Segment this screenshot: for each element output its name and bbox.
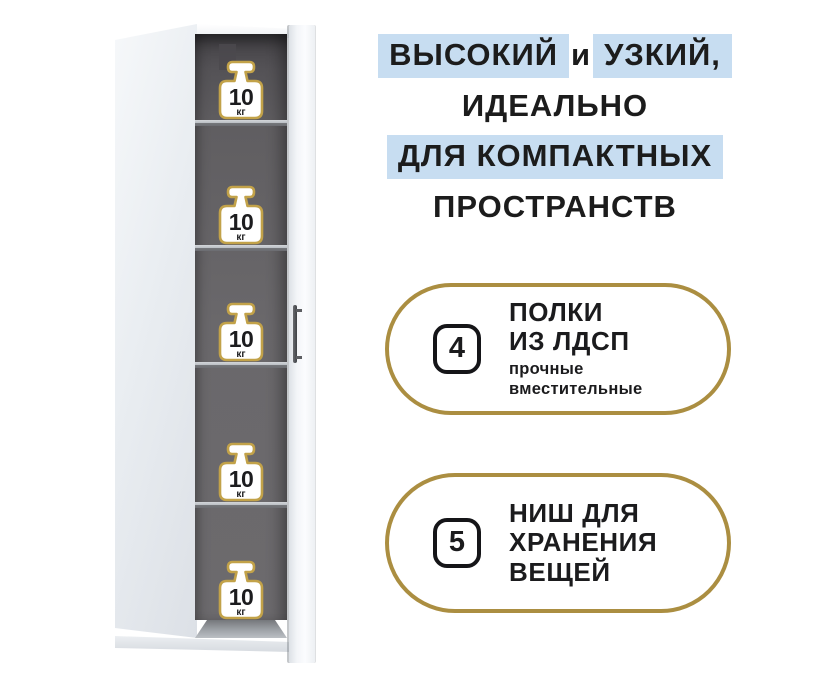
feature-title-line: ПОЛКИ: [509, 298, 603, 327]
feature-subtitle-line: прочные: [509, 360, 584, 380]
weight-capacity-icon: 10 кг: [217, 185, 265, 245]
feature-badge-niches: 5 НИШ ДЛЯ ХРАНЕНИЯ ВЕЩЕЙ: [385, 473, 731, 613]
weight-capacity-icon: 10 кг: [217, 60, 265, 120]
feature-count-box: 5: [433, 518, 481, 568]
cabinet-shelf: [195, 245, 287, 251]
headline-line-1: ВЫСОКИЙ и УЗКИЙ,: [378, 34, 732, 78]
headline-highlight: УЗКИЙ,: [593, 34, 732, 78]
feature-title-line: НИШ ДЛЯ: [509, 499, 639, 528]
feature-count-box: 4: [433, 324, 481, 374]
headline-text: ПРОСТРАНСТВ: [422, 186, 688, 230]
cabinet-door: [289, 25, 315, 663]
weight-unit: кг: [236, 232, 245, 243]
headline-line-2: ИДЕАЛЬНО: [451, 85, 659, 129]
weight-unit: кг: [236, 607, 245, 618]
feature-title-line: ХРАНЕНИЯ: [509, 528, 657, 557]
cabinet-door-handle: [293, 305, 297, 363]
weight-unit: кг: [236, 107, 245, 118]
feature-text: ПОЛКИ ИЗ ЛДСП прочные вместительные: [509, 298, 643, 400]
cabinet-shelf: [195, 362, 287, 368]
headline-line-3: ДЛЯ КОМПАКТНЫХ: [387, 135, 723, 179]
cabinet-shelf: [195, 502, 287, 508]
weight-unit: кг: [236, 489, 245, 500]
feature-title-line: ИЗ ЛДСП: [509, 327, 630, 356]
headline-highlight: ВЫСОКИЙ: [378, 34, 569, 78]
feature-text: НИШ ДЛЯ ХРАНЕНИЯ ВЕЩЕЙ: [509, 499, 657, 586]
weight-capacity-icon: 10 кг: [217, 442, 265, 502]
cabinet-shelf: [195, 120, 287, 126]
headline: ВЫСОКИЙ и УЗКИЙ, ИДЕАЛЬНО ДЛЯ КОМПАКТНЫХ…: [330, 34, 780, 230]
weight-capacity-icon: 10 кг: [217, 560, 265, 620]
headline-highlight: ДЛЯ КОМПАКТНЫХ: [387, 135, 723, 179]
cabinet-illustration: 10 кг 10 кг 10 кг 10 кг: [115, 22, 317, 667]
cabinet-floor: [195, 620, 287, 638]
weight-capacity-icon: 10 кг: [217, 302, 265, 362]
feature-subtitle-line: вместительные: [509, 380, 643, 400]
weight-unit: кг: [236, 349, 245, 360]
feature-badge-shelves: 4 ПОЛКИ ИЗ ЛДСП прочные вместительные: [385, 283, 731, 415]
headline-line-4: ПРОСТРАНСТВ: [422, 186, 688, 230]
feature-title-line: ВЕЩЕЙ: [509, 558, 611, 587]
product-infographic: 10 кг 10 кг 10 кг 10 кг: [0, 0, 816, 700]
cabinet-side-panel: [115, 22, 197, 644]
headline-text: и: [569, 34, 593, 78]
headline-text: ИДЕАЛЬНО: [451, 85, 659, 129]
